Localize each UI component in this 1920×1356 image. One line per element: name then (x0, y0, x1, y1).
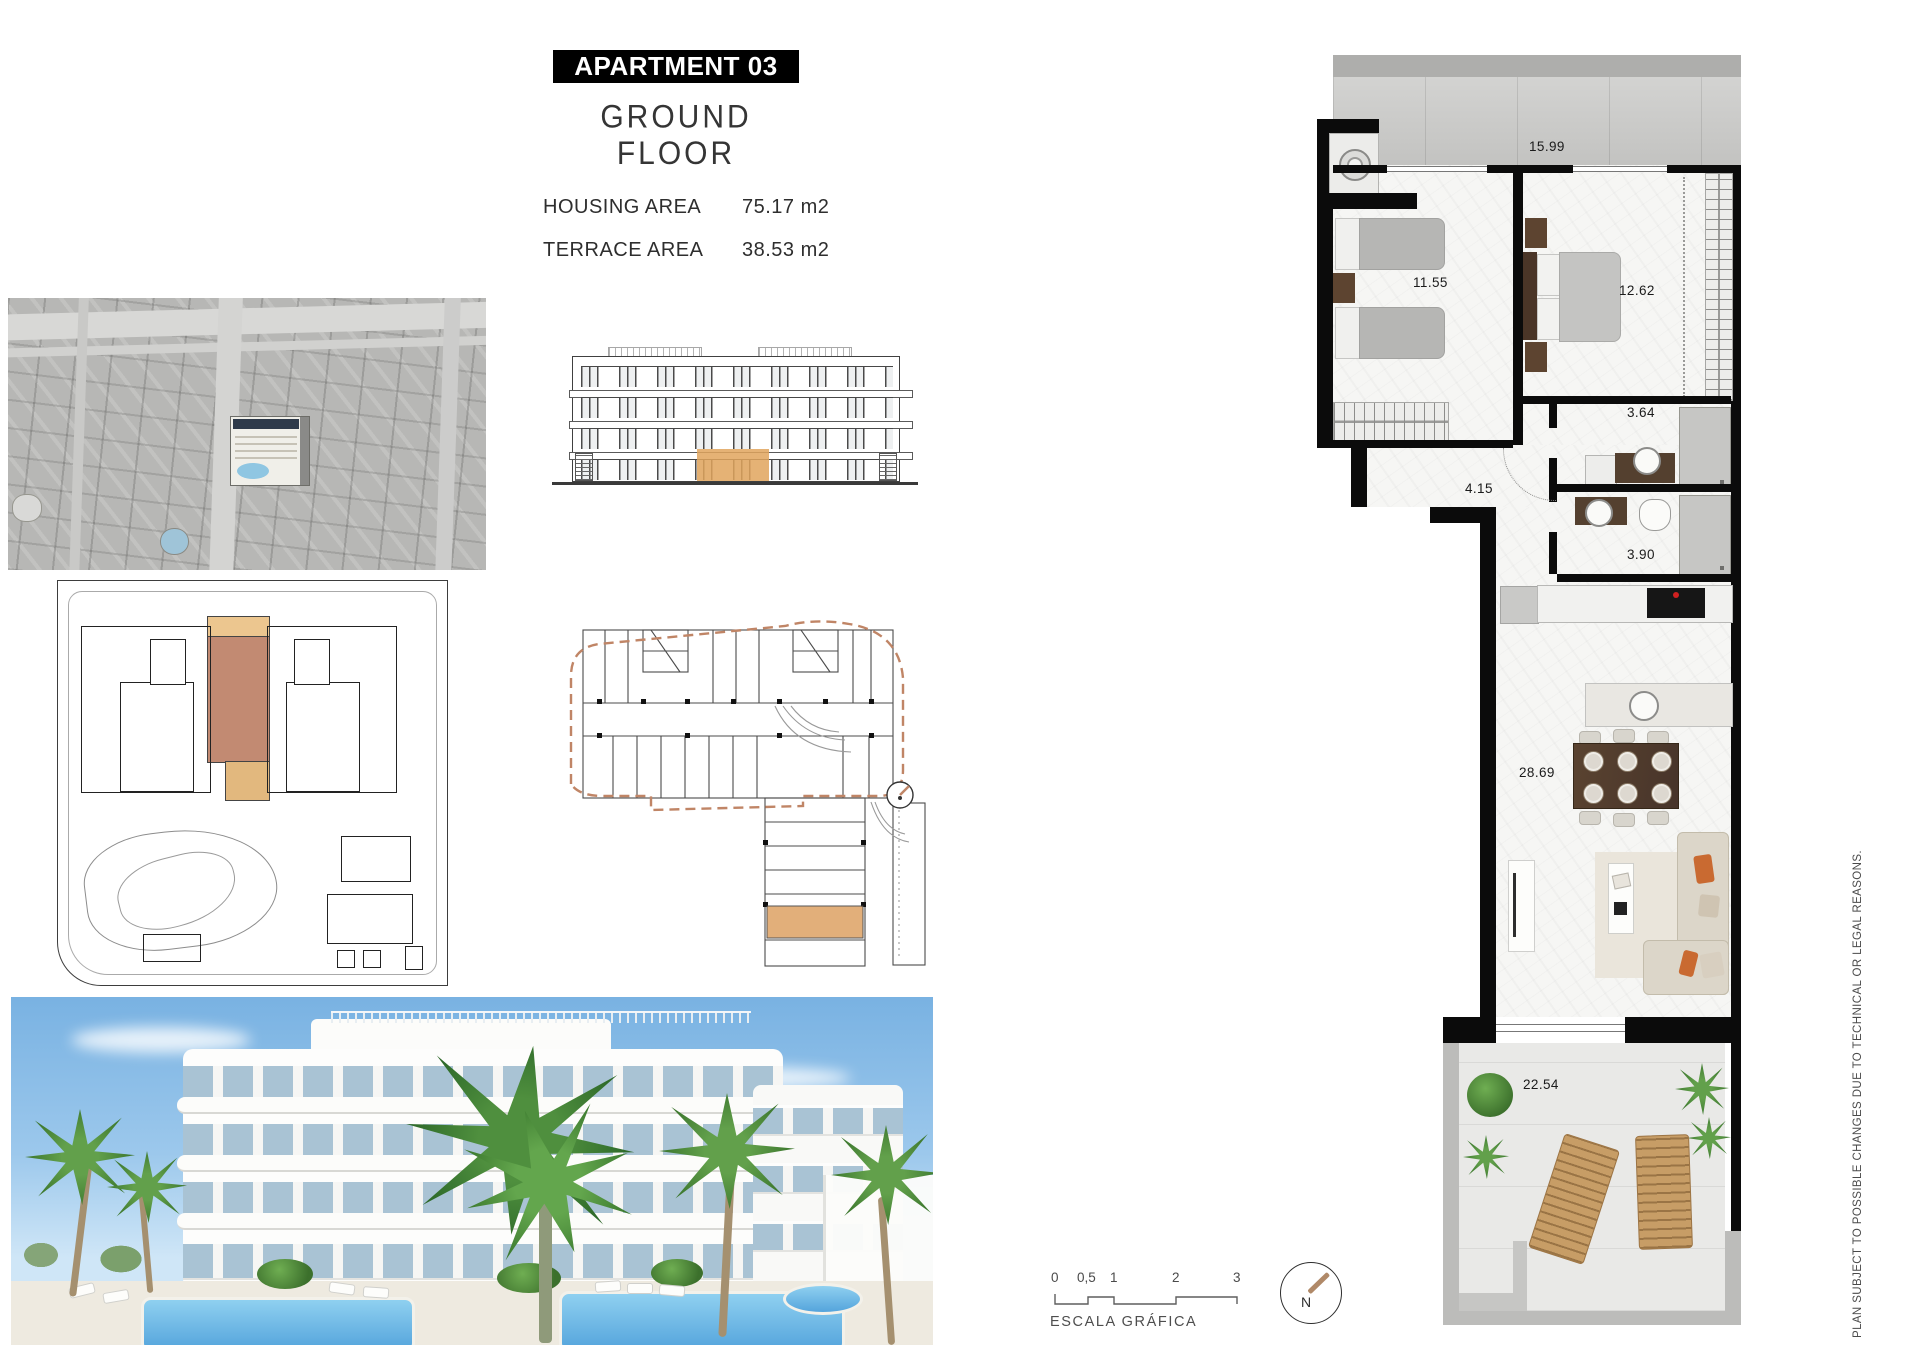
photo-pergola (823, 1175, 933, 1289)
scale-tick-1: 1 (1110, 1270, 1118, 1285)
site-pool (237, 463, 269, 479)
bedroom-window-wall-3 (1667, 165, 1741, 173)
scale-tick-2: 2 (1172, 1270, 1180, 1285)
place-setting (1618, 752, 1637, 771)
elevation-body (572, 356, 900, 482)
laundry-nook-wall-left (1317, 133, 1329, 195)
hallway-area-label: 4.15 (1465, 481, 1493, 496)
baths-left-wall-c (1549, 532, 1557, 574)
elevation-floor-4-windows (581, 366, 893, 387)
tv-screen (1513, 873, 1516, 937)
bath1-top-wall (1523, 396, 1731, 404)
bedroom-window-wall-2 (1487, 165, 1573, 173)
elevation-floor-2-windows (581, 428, 893, 449)
map-pool-blob-2 (160, 528, 189, 555)
terrace-wall-right-segment (1625, 1017, 1741, 1043)
amenity-stub-1 (337, 950, 355, 968)
elevation-stair-left (575, 453, 593, 481)
apartment-title-badge: APARTMENT 03 (553, 50, 799, 83)
bed-blanket (1359, 307, 1445, 359)
bath2-shower (1679, 495, 1731, 577)
top-terrace-parapet (1333, 55, 1741, 78)
twin-bed-1 (1335, 218, 1443, 268)
elevation-stair-right (879, 453, 897, 481)
dining-chair (1647, 811, 1669, 825)
tv-unit (1508, 860, 1535, 952)
left-outer-wall (1317, 209, 1333, 445)
elevation-unit-highlight (697, 449, 769, 481)
terrace-wall-left-segment (1443, 1017, 1496, 1043)
terrace-border-right (1725, 1231, 1741, 1325)
bathroom2-area-label: 3.90 (1627, 547, 1655, 562)
place-setting (1584, 752, 1603, 771)
photo-lounger (659, 1284, 686, 1297)
apartment-title: APARTMENT 03 (574, 51, 777, 82)
photo-lounger (627, 1283, 653, 1294)
coffee-table-book (1612, 872, 1632, 889)
bed-pillow (1335, 307, 1361, 359)
photo-bush (257, 1259, 313, 1289)
terrace-border-left (1443, 1043, 1459, 1325)
bathroom1-area-label: 3.64 (1627, 405, 1655, 420)
place-setting (1652, 752, 1671, 771)
terrace-right-wall (1731, 1043, 1741, 1231)
compass-north-label: N (1301, 1294, 1311, 1310)
highlight-strip-top (207, 616, 270, 638)
amenity-stub-3 (405, 946, 423, 970)
elevation-ground-line (552, 482, 918, 485)
master-wardrobe (1705, 173, 1733, 401)
palm-tree (25, 1109, 135, 1205)
bedroom2-window (1573, 166, 1667, 172)
washing-machine (1329, 133, 1379, 195)
bed-blanket (1559, 252, 1621, 342)
terrace-area-label: TERRACE AREA (543, 239, 703, 262)
closet-bottom-wall (1317, 440, 1513, 448)
highlight-strip-mid (207, 636, 270, 763)
scale-tick-0: 0 (1051, 1270, 1059, 1285)
apartment-floor-plan: 15.99 11.55 (1317, 55, 1749, 1340)
bedroom-divider-wall (1513, 173, 1523, 445)
coffee-table-tray (1614, 902, 1627, 915)
palm-tree (107, 1151, 187, 1223)
amenity-rect-1 (341, 836, 411, 882)
terrace-border-bottom (1443, 1311, 1741, 1325)
site-building-lines (235, 433, 297, 459)
building-photo (11, 997, 933, 1345)
floor-title: GROUND FLOOR (540, 99, 812, 172)
sofa-cushion-orange (1693, 854, 1715, 884)
bath2-bottom-wall (1557, 574, 1731, 582)
nightstand (1525, 218, 1547, 248)
photo-spa-round (783, 1283, 863, 1315)
headboard (1523, 252, 1537, 340)
twin-bedroom-area-label: 11.55 (1413, 275, 1448, 290)
baths-left-wall-a (1549, 404, 1557, 428)
photo-lounger (595, 1280, 622, 1293)
plan-sheet-page: APARTMENT 03 GROUND FLOOR HOUSING AREA 7… (0, 0, 1920, 1356)
dining-chair (1613, 813, 1635, 827)
scale-tick-05: 0,5 (1077, 1270, 1096, 1285)
photo-pool-left (141, 1297, 415, 1345)
master-dressing-line (1683, 177, 1685, 397)
living-area-label: 28.69 (1519, 765, 1555, 780)
site-roof-strip (233, 419, 299, 429)
bedroom-window-wall-1 (1333, 165, 1387, 173)
site-plan-drawing (55, 578, 450, 988)
amenity-rect-2 (327, 894, 413, 944)
kitchen-fridge (1500, 586, 1539, 624)
dining-table (1573, 743, 1679, 809)
site-side-block (300, 417, 309, 485)
sofa-cushion-beige (1699, 951, 1725, 978)
kitchen-sink (1629, 691, 1659, 721)
hall-left-wall (1351, 445, 1367, 507)
bedroom1-window (1387, 166, 1487, 172)
double-bed (1537, 252, 1619, 340)
scale-tick-3: 3 (1233, 1270, 1241, 1285)
photo-building-roofrail (331, 1011, 751, 1023)
baths-divider-wall (1557, 484, 1731, 492)
bed-blanket (1359, 218, 1445, 270)
amenity-stub-2 (363, 950, 381, 968)
kitchen-island (1585, 683, 1733, 727)
photo-floor2-balcony (177, 1213, 801, 1230)
garage-plan-svg (553, 588, 928, 992)
photo-bush (651, 1259, 703, 1287)
footprint-tab (150, 639, 186, 685)
bed-pillow (1537, 298, 1561, 340)
dining-chair (1579, 811, 1601, 825)
laundry-nook-wall-bottom (1317, 193, 1417, 209)
pavilion-rect (143, 934, 201, 962)
photo-lounger (363, 1286, 390, 1299)
bath1-shower (1679, 407, 1731, 491)
kitchen-cooktop (1647, 588, 1705, 618)
place-setting (1584, 784, 1603, 803)
terrace-path-horizontal (1459, 1293, 1527, 1311)
building-footprint-right (267, 626, 397, 793)
bath1-sink (1633, 447, 1661, 475)
shower-drain (1720, 566, 1724, 570)
main-terrace-area-label: 22.54 (1523, 1077, 1559, 1092)
scale-bar: 0 0,5 1 2 3 ESCALA GRÁFICA (1048, 1270, 1258, 1342)
footprint-inner (120, 682, 194, 792)
footprint-tab (294, 639, 330, 685)
dining-chair (1613, 729, 1635, 743)
bed-pillow (1537, 254, 1561, 296)
sun-lounger (1635, 1134, 1693, 1250)
elevation-floor-3-windows (581, 397, 893, 418)
twin-bed-2 (1335, 307, 1443, 357)
footprint-inner (286, 682, 360, 792)
twin-bedroom-closet (1333, 402, 1449, 442)
garage-plan-drawing (553, 588, 928, 992)
place-setting (1652, 784, 1671, 803)
cooktop-burner-indicator (1673, 592, 1679, 598)
bath1-cabinet (1585, 455, 1617, 485)
place-setting (1618, 784, 1637, 803)
coffee-table (1608, 863, 1634, 934)
compass: N (1280, 1262, 1342, 1324)
nightstand (1333, 273, 1355, 303)
highlight-strip-bottom (225, 761, 270, 801)
sofa-cushion-beige (1698, 894, 1720, 918)
bath2-sink (1585, 499, 1613, 527)
housing-area-value: 75.17 m2 (742, 196, 829, 219)
map-highlighted-site (230, 416, 310, 486)
photo-rightwing-windows-1 (753, 1105, 903, 1136)
building-footprint-left (81, 626, 211, 793)
bath2-toilet (1639, 499, 1671, 531)
bed-pillow (1335, 218, 1361, 270)
elevation-drawing (560, 345, 910, 493)
laundry-nook-wall-top (1317, 119, 1379, 133)
disclaimer-text: PLAN SUBJECT TO POSSIBLE CHANGES DUE TO … (1852, 842, 1864, 1338)
living-left-wall (1480, 507, 1496, 1017)
master-bedroom-area-label: 12.62 (1619, 283, 1655, 298)
terrace-bush (1467, 1073, 1513, 1117)
map-pool-blob-1 (12, 494, 42, 522)
terrace-sliding-door (1496, 1024, 1625, 1032)
nightstand (1525, 342, 1547, 372)
top-terrace-area-label: 15.99 (1529, 139, 1565, 154)
scale-bar-line (1048, 1288, 1248, 1312)
terrace-area-value: 38.53 m2 (742, 239, 829, 262)
housing-area-label: HOUSING AREA (543, 196, 701, 219)
satellite-map (8, 298, 486, 570)
scale-caption: ESCALA GRÁFICA (1050, 1314, 1197, 1330)
